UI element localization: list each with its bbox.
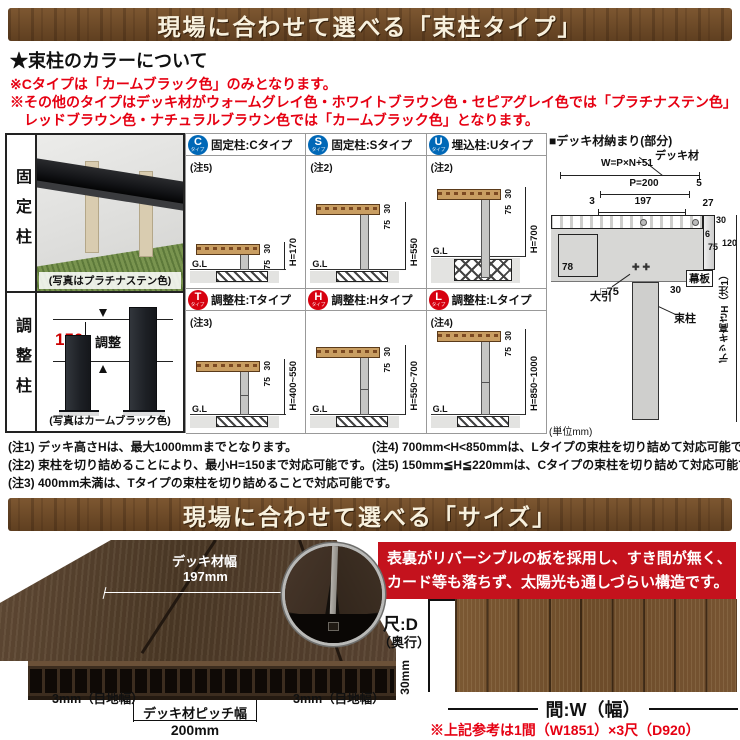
type-cell-header: Uタイプ 埋込柱:Uタイプ <box>427 134 546 156</box>
ground-line <box>310 269 406 270</box>
foundation-hatch <box>457 416 509 427</box>
footnote-3: (注3) 400mm未満は、Tタイプの束柱を切り詰めることで対応可能です。 <box>8 474 397 491</box>
screw-marks: ✚✚ <box>632 262 653 273</box>
fixed-post-row: 固定柱 (写真はプラチナステン色) <box>7 135 183 293</box>
joint-closeup-inset <box>282 543 385 646</box>
adjustable-post <box>360 357 369 415</box>
dimension-line <box>284 242 285 270</box>
type-cell-header: Sタイプ 固定柱:Sタイプ <box>306 134 425 156</box>
type-cell-header: Hタイプ 調整柱:Hタイプ <box>306 289 425 311</box>
type-cell-h: Hタイプ 調整柱:Hタイプ G.L 30 75 H=550~700 <box>306 289 426 434</box>
feature-line-2: カード等も落ちず、太陽光も通しづらい構造です。 <box>387 571 727 595</box>
dim-27: 27 <box>698 198 718 209</box>
unit-note: (単位mm) <box>549 423 592 438</box>
type-cell-title: 埋込柱:Uタイプ <box>452 137 533 153</box>
dim-height: H=550 <box>409 238 420 266</box>
dim-75: 75 <box>503 205 513 214</box>
color-note-1: ※Cタイプは「カームブラック色」のみとなります。 <box>10 74 337 94</box>
type-s-badge-icon: Sタイプ <box>308 135 328 155</box>
dim-height: H=850~1000 <box>529 356 540 411</box>
adjust-post-row: 調整柱 150 調整 (写真はカームブラック色) <box>7 293 183 431</box>
fixed-post-photo: (写真はプラチナステン色) <box>37 135 183 291</box>
dim-30: 30 <box>382 347 392 356</box>
type-cell-header: Cタイプ 固定柱:Cタイプ <box>186 134 305 156</box>
banner-title: 現場に合わせて選べる「サイズ」 <box>183 498 557 532</box>
dim-75: 75 <box>382 363 392 372</box>
dim-6: 6 <box>705 229 710 239</box>
support-post <box>632 282 659 420</box>
adjust-photo-caption: (写真はカームブラック色) <box>39 412 181 429</box>
type-h-badge-icon: Hタイプ <box>308 290 328 310</box>
dim-height: H=170 <box>288 238 299 266</box>
dimension-line <box>600 194 690 195</box>
screw-icon <box>692 219 699 226</box>
color-note-3: レッドブラウン色・ナチュラルブラウン色では「カームブラック色」となります。 <box>24 110 539 130</box>
dim-75-right: 75 <box>708 242 718 252</box>
type-cell-l: Lタイプ 調整柱:Lタイプ (注4) G.L 30 75 H=850~1000 <box>427 289 547 434</box>
height-dimension-line <box>736 215 737 422</box>
type-cell-title: 調整柱:Tタイプ <box>211 292 291 308</box>
dim-height: H=400~550 <box>288 361 299 411</box>
catalog-page: 現場に合わせて選べる「束柱タイプ」 ★束柱のカラーについて ※Cタイプは「カーム… <box>0 0 740 740</box>
adjust-text: 調整 <box>95 332 121 351</box>
pitch-dim: P=200 <box>600 178 688 189</box>
dim-78: 78 <box>562 262 573 273</box>
adjust-post-label: 調整柱 <box>7 293 37 431</box>
section-banner-post-type: 現場に合わせて選べる「束柱タイプ」 <box>8 8 732 41</box>
reference-note: ※上記参考は1間（W1851）×3尺（D920） <box>430 720 700 740</box>
dim-120: 120 <box>722 238 737 248</box>
type-t-diagram: G.L 30 75 H=400~550 <box>190 313 301 428</box>
ground-line <box>431 414 527 415</box>
deck-height-label: デッキ高さH（注1） <box>718 270 733 363</box>
foundation-hatch <box>336 271 388 282</box>
ground-level-label: G.L <box>433 246 448 256</box>
foundation-hatch <box>216 271 268 282</box>
closeup-board-right <box>331 543 385 617</box>
type-cell-title: 調整柱:Lタイプ <box>452 292 532 308</box>
joint-width-right: 3mm（目地幅） <box>293 688 385 707</box>
ground-line <box>310 414 406 415</box>
type-t-badge-icon: Tタイプ <box>188 290 208 310</box>
deck-board <box>196 244 260 255</box>
dim-30: 30 <box>262 361 272 370</box>
dimension-line <box>560 175 700 176</box>
color-heading: ★束柱のカラーについて <box>10 47 207 73</box>
joint-width-left: 3mm（目地幅） <box>52 688 144 707</box>
bracket-line <box>448 708 538 710</box>
deck-board-section <box>551 215 703 229</box>
depth-sublabel: （奥行） <box>378 632 430 651</box>
deck-board <box>437 331 501 342</box>
dimension-line <box>405 202 406 270</box>
pitch-value: 200mm <box>120 722 270 738</box>
adjustable-post <box>240 371 249 415</box>
fixed-post-label: 固定柱 <box>7 135 37 291</box>
adjust-post-diagram: 150 調整 (写真はカームブラック色) <box>37 293 183 431</box>
arrow-down-icon <box>99 309 107 317</box>
dim-5: 5 <box>692 178 706 189</box>
deck-board <box>316 204 380 215</box>
arrow-up-icon <box>99 365 107 373</box>
dim-30-top: 30 <box>716 215 726 225</box>
deck-detail-panel: ■デッキ材納まり(部分) デッキ材 W=P×N+51 P=200 5 3 197… <box>548 130 740 435</box>
adjustable-post <box>65 335 91 411</box>
dim-3: 3 <box>586 196 598 207</box>
type-c-badge-icon: Cタイプ <box>188 135 208 155</box>
width-label-row: 間:W（幅） <box>448 696 738 722</box>
type-cell-c: Cタイプ 固定柱:Cタイプ (注5) G.L 30 75 H=170 <box>186 134 306 289</box>
ground-level-label: G.L <box>192 259 207 269</box>
type-u-badge-icon: Uタイプ <box>429 135 449 155</box>
dim-30: 30 <box>262 244 272 253</box>
post-category-panel: 固定柱 (写真はプラチナステン色) 調整柱 150 調整 <box>5 133 185 433</box>
footnote-4: (注4) 700mm<H<850mmは、Lタイプの束柱を切り詰めて対応可能です。 <box>372 438 740 455</box>
depth-bracket <box>428 599 456 692</box>
deck-board <box>316 347 380 358</box>
deck-board <box>196 361 260 372</box>
ground-level-label: G.L <box>312 404 327 414</box>
dim-75: 75 <box>382 220 392 229</box>
deck-board <box>437 189 501 200</box>
ground-level-label: G.L <box>433 404 448 414</box>
adjustable-post <box>129 307 157 411</box>
dim-height: H=550~700 <box>409 361 420 411</box>
width-label: 間:W（幅） <box>546 696 641 722</box>
closeup-board-left <box>282 543 337 618</box>
dim-30-bottom: 30 <box>670 285 681 296</box>
leader-line <box>659 306 676 315</box>
dim-30: 30 <box>503 331 513 340</box>
post <box>481 199 490 278</box>
screw-icon <box>640 219 647 226</box>
footnote-2: (注2) 束柱を切り詰めることにより、最小H=150まで対応可能です。 <box>8 456 372 473</box>
dimension-line <box>525 329 526 415</box>
adjustable-post <box>481 341 490 415</box>
type-cell-u: Uタイプ 埋込柱:Uタイプ (注2) G.L 30 75 H=700 <box>427 134 547 289</box>
type-s-diagram: G.L 30 75 H=550 <box>310 160 421 283</box>
dim-height: H=700 <box>529 225 540 253</box>
dimension-line <box>525 187 526 257</box>
fixed-photo-caption: (写真はプラチナステン色) <box>39 272 181 289</box>
thickness-label: 30mm <box>398 660 412 695</box>
type-cell-title: 固定柱:Cタイプ <box>211 137 292 153</box>
type-l-diagram: G.L 30 75 H=850~1000 <box>431 313 542 428</box>
detail-title: ■デッキ材納まり(部分) <box>549 132 672 149</box>
dim-75: 75 <box>262 260 272 269</box>
ground-line <box>190 414 286 415</box>
support-post-label: 束柱 <box>674 310 696 326</box>
foundation-hatch <box>216 416 268 427</box>
dim-30: 30 <box>382 204 392 213</box>
post-type-grid: Cタイプ 固定柱:Cタイプ (注5) G.L 30 75 H=170 Sタイプ … <box>185 133 547 433</box>
type-u-diagram: G.L 30 75 H=700 <box>431 160 542 283</box>
deck-width-value: 197mm <box>183 569 228 584</box>
ground-line <box>431 256 527 257</box>
banner-title: 現場に合わせて選べる「束柱タイプ」 <box>158 8 583 42</box>
type-cell-header: Tタイプ 調整柱:Tタイプ <box>186 289 305 311</box>
post <box>240 254 249 270</box>
dimension-line <box>405 345 406 415</box>
deck-plan-view <box>455 599 737 692</box>
ground-level-label: G.L <box>192 404 207 414</box>
dim-197: 197 <box>600 196 686 207</box>
type-cell-title: 固定柱:Sタイプ <box>331 137 412 153</box>
color-note-2: ※その他のタイプはデッキ材がウォームグレイ色・ホワイトブラウン色・セピアグレイ色… <box>10 92 737 112</box>
footnote-1: (注1) デッキ高さHは、最大1000mmまでとなります。 <box>8 438 297 455</box>
dim-30: 30 <box>503 189 513 198</box>
feature-callout: 表裏がリバーシブルの板を採用し、すき間が無く、 カード等も落ちず、太陽光も通しづ… <box>378 542 736 599</box>
dimension-line <box>598 212 686 213</box>
type-h-diagram: G.L 30 75 H=550~700 <box>310 313 421 428</box>
type-cell-t: Tタイプ 調整柱:Tタイプ (注3) G.L 30 75 H=400~550 <box>186 289 306 434</box>
fascia-label: 幕板 <box>686 270 713 287</box>
dim-75: 75 <box>503 347 513 356</box>
bracket-line <box>649 708 739 710</box>
type-cell-header: Lタイプ 調整柱:Lタイプ <box>427 289 546 311</box>
deck-width-label: デッキ材幅 <box>172 551 237 570</box>
post-size-label: □75 <box>600 286 619 298</box>
feature-line-1: 表裏がリバーシブルの板を採用し、すき間が無く、 <box>387 547 727 571</box>
dimension-line <box>284 359 285 415</box>
type-cell-title: 調整柱:Hタイプ <box>331 292 412 308</box>
ground-level-label: G.L <box>312 259 327 269</box>
foundation-hatch <box>336 416 388 427</box>
closeup-connector <box>328 622 340 632</box>
type-l-badge-icon: Lタイプ <box>429 290 449 310</box>
type-c-diagram: G.L 30 75 H=170 <box>190 160 301 283</box>
section-banner-size: 現場に合わせて選べる「サイズ」 <box>8 498 732 531</box>
dim-75: 75 <box>262 377 272 386</box>
width-formula: W=P×N+51 <box>562 158 692 169</box>
type-cell-s: Sタイプ 固定柱:Sタイプ (注2) G.L 30 75 H=550 <box>306 134 426 289</box>
footnote-5: (注5) 150mm≦H≦220mmは、Cタイプの束柱を切り詰めて対応可能です。 <box>372 456 740 473</box>
post <box>360 214 369 270</box>
